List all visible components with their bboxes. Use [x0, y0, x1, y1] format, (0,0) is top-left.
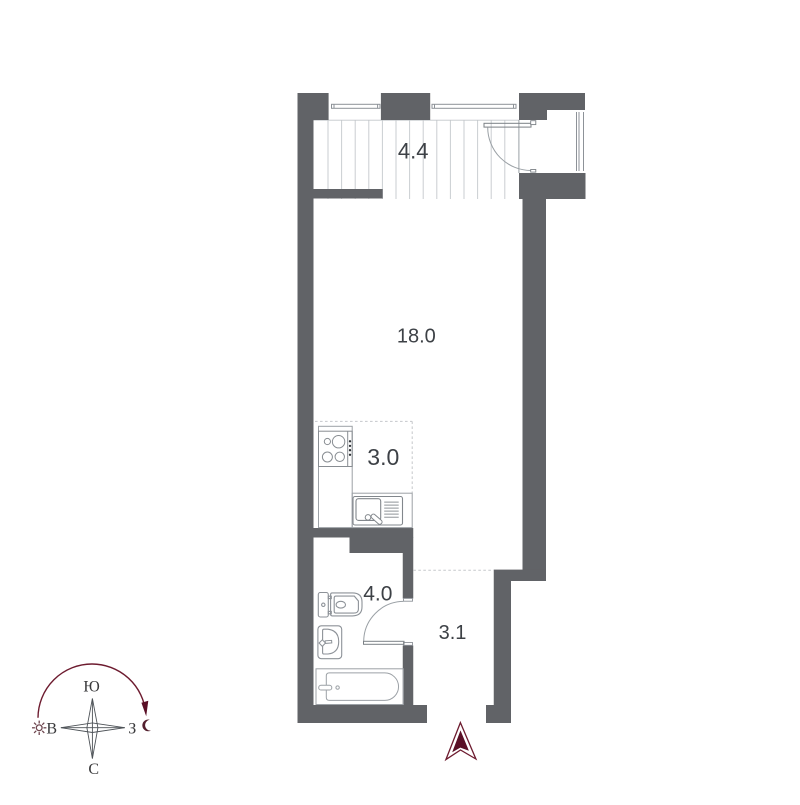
svg-text:18.0: 18.0: [397, 325, 436, 347]
svg-text:3.1: 3.1: [439, 622, 467, 644]
svg-text:3.0: 3.0: [367, 444, 399, 470]
svg-text:4.0: 4.0: [363, 583, 392, 606]
svg-text:4.4: 4.4: [398, 139, 429, 164]
svg-text:З: З: [128, 721, 136, 738]
svg-text:Ю: Ю: [83, 678, 99, 695]
svg-text:С: С: [88, 761, 99, 778]
svg-text:В: В: [46, 721, 57, 738]
